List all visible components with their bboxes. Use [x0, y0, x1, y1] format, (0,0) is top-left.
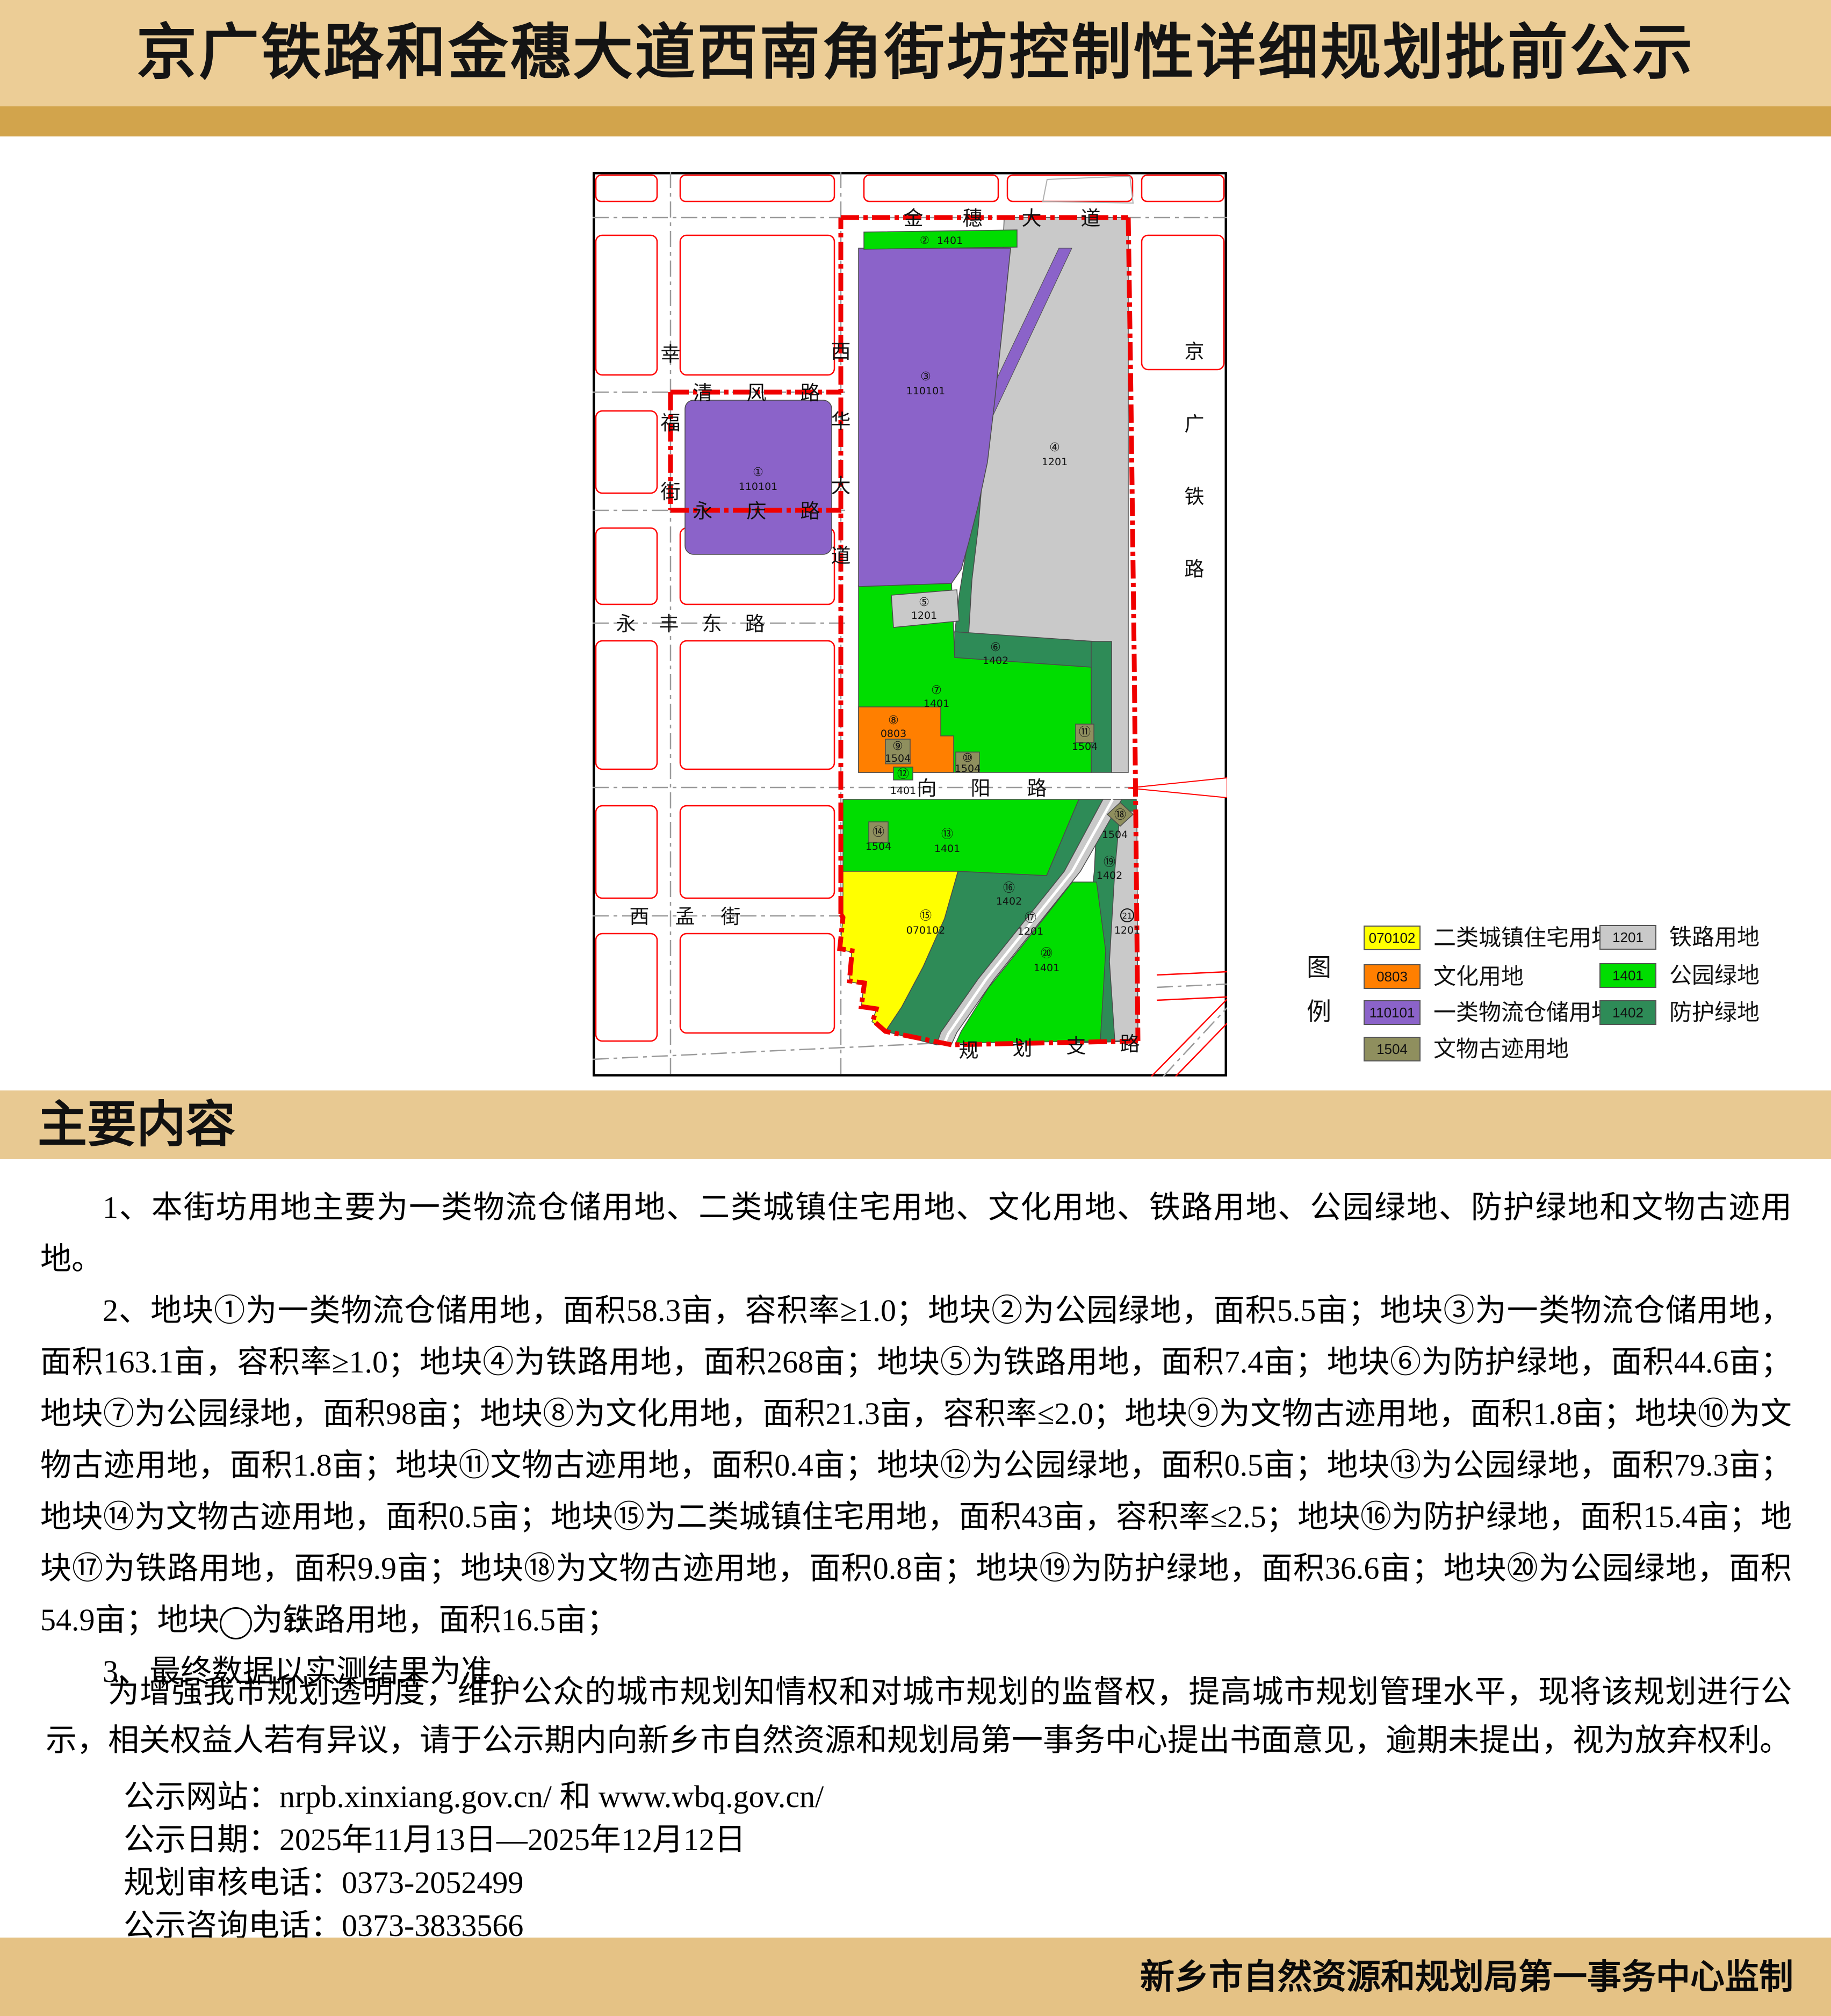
parcel-21-code: 1201: [1114, 924, 1140, 936]
map-legend: 图 例 070102 二类城镇住宅用地 0803 文化用地 110101 一类物…: [1295, 908, 1827, 1069]
parcel-14-code: 1504: [866, 841, 891, 852]
parcel-21-num: 21: [1122, 911, 1132, 921]
parcel-6-shape-c: [1091, 641, 1112, 772]
road-label-xiangyang-3: 路: [1027, 777, 1047, 799]
road-label-xihua-1: 西: [831, 341, 851, 363]
page-title: 京广铁路和金穗大道西南角街坊控制性详细规划批前公示: [0, 0, 1831, 106]
parcel-7-code: 1401: [924, 698, 949, 710]
road-label-jingguang-3: 铁: [1185, 486, 1205, 508]
parcel-17-code: 1201: [1018, 926, 1043, 937]
road-label-yongfengdong-2: 丰: [659, 613, 679, 635]
parcel-16-num: ⑯: [1003, 881, 1015, 895]
road-label-xingfu-1: 幸: [661, 343, 681, 365]
paragraph-1: 1、本街坊用地主要为一类物流仓储用地、二类城镇住宅用地、文化用地、铁路用地、公园…: [40, 1182, 1792, 1285]
title-band: 京广铁路和金穗大道西南角街坊控制性详细规划批前公示: [0, 0, 1831, 106]
parcel-8-num: ⑧: [888, 714, 899, 727]
parcel-20-num: ⑳: [1041, 947, 1053, 960]
parcel-15-code: 070102: [906, 924, 946, 936]
parcel-6-num: ⑥: [990, 641, 1001, 654]
road-label-guihua-4: 路: [1120, 1033, 1140, 1055]
road-label-xihua-2: 华: [831, 410, 851, 432]
parcel-12-code: 1401: [890, 785, 916, 797]
road-label-jingguang-2: 广: [1185, 413, 1205, 435]
parcel-9-num: ⑨: [892, 740, 903, 753]
paragraph-2-part-a: 2、地块①为一类物流仓储用地，面积58.3亩，容积率≥1.0；地块②为公园绿地，…: [40, 1293, 1792, 1637]
parcel-10-code: 1504: [955, 763, 981, 775]
paragraph-2: 2、地块①为一类物流仓储用地，面积58.3亩，容积率≥1.0；地块②为公园绿地，…: [40, 1285, 1792, 1646]
legend-label-1504: 文物古迹用地: [1433, 1037, 1569, 1061]
footer-text: 新乡市自然资源和规划局第一事务中心监制: [1140, 1938, 1793, 2016]
section-band: 主要内容: [0, 1090, 1831, 1159]
parcel-16-code: 1402: [996, 895, 1022, 907]
paragraph-2-part-b: 为铁路用地，面积16.5亩；: [252, 1602, 618, 1637]
legend-title-char-1: 图: [1306, 945, 1332, 989]
parcel-9-code: 1504: [885, 753, 911, 764]
legend-swatch-1401: 1401: [1599, 963, 1656, 988]
parcel-4-code: 1201: [1042, 456, 1068, 468]
road-label-guihua-3: 支: [1066, 1035, 1086, 1057]
notice-date-line: 公示日期：2025年11月13日—2025年12月12日: [124, 1818, 1792, 1861]
road-label-yongfengdong-4: 路: [745, 613, 765, 635]
parcel-7-num: ⑦: [931, 684, 942, 697]
legend-swatch-1402: 1402: [1599, 1000, 1656, 1025]
parcel-19-code: 1402: [1097, 870, 1122, 881]
map-svg: 金 穗 大 道 清 风 路 永 庆 路 永 丰 东 路 向 阳 路 西 孟 街 …: [593, 172, 1227, 1076]
road-label-xingfu-3: 街: [661, 481, 681, 503]
road-label-yongqing-2: 庆: [747, 500, 767, 522]
road-label-guihua-2: 划: [1013, 1037, 1033, 1059]
parcel-19-num: ⑲: [1104, 856, 1115, 869]
legend-label-1201: 铁路用地: [1669, 925, 1760, 950]
parcel-15-num: ⑮: [920, 909, 932, 923]
legend-label-1402: 防护绿地: [1669, 1000, 1760, 1025]
parcel-1-num: ①: [753, 466, 763, 479]
notice-website-line: 公示网站：nrpb.xinxiang.gov.cn/ 和 www.wbq.gov…: [124, 1775, 1792, 1818]
road-label-xiangyang-2: 阳: [971, 777, 991, 799]
road-label-yongfengdong-1: 永: [616, 613, 636, 635]
road-label-jinsui-2: 穗: [963, 207, 983, 229]
legend-title-char-2: 例: [1306, 989, 1332, 1034]
road-label-jinsui-1: 金: [904, 207, 924, 229]
gold-stripe: [0, 106, 1831, 136]
parcel-5-code: 1201: [911, 610, 937, 622]
legend-swatch-0803: 0803: [1364, 964, 1421, 989]
legend-swatch-1504: 1504: [1364, 1037, 1421, 1061]
parcel-5-num: ⑤: [919, 596, 929, 609]
road-label-yongqing-1: 永: [693, 500, 713, 522]
road-label-yongfengdong-3: 东: [702, 613, 722, 635]
parcel-3-code: 110101: [906, 385, 946, 397]
road-label-ximeng-2: 孟: [675, 906, 695, 928]
road-label-xihua-4: 道: [831, 545, 851, 567]
road-label-xingfu-2: 福: [661, 412, 681, 434]
road-label-guihua-1: 规: [959, 1039, 979, 1061]
road-label-ximeng-1: 西: [630, 906, 650, 928]
parcel-2-code: 1401: [937, 235, 963, 247]
parcel-13-code: 1401: [934, 843, 960, 855]
parcel-12-num: ⑫: [897, 768, 909, 781]
parcel-8-code: 0803: [881, 728, 906, 740]
footer-band: 新乡市自然资源和规划局第一事务中心监制: [0, 1938, 1831, 2016]
parcel-17-num: ⑰: [1025, 912, 1036, 925]
parcel-18-code: 1504: [1102, 829, 1128, 841]
main-content-text: 1、本街坊用地主要为一类物流仓储用地、二类城镇住宅用地、文化用地、铁路用地、公园…: [40, 1182, 1792, 1697]
parcel-13-num: ⑬: [941, 828, 953, 841]
legend-title: 图 例: [1306, 945, 1332, 1034]
legend-swatch-070102: 070102: [1364, 926, 1421, 950]
section-header: 主要内容: [0, 1090, 1831, 1159]
parcel-18-num: ⑱: [1114, 808, 1126, 822]
parcel-6-code: 1402: [983, 655, 1008, 667]
parcel-3-num: ③: [920, 370, 931, 384]
legend-label-070102: 二类城镇住宅用地: [1433, 926, 1614, 950]
notice-review-phone-line: 规划审核电话：0373-2052499: [124, 1861, 1792, 1904]
planning-notice-page: 京广铁路和金穗大道西南角街坊控制性详细规划批前公示: [0, 0, 1831, 2016]
circled-21: 21: [220, 1607, 252, 1639]
road-label-qingfeng-1: 清: [693, 382, 713, 404]
road-label-ximeng-3: 街: [721, 906, 741, 928]
legend-label-110101: 一类物流仓储用地: [1433, 1000, 1614, 1025]
parcel-11-code: 1504: [1072, 741, 1098, 753]
road-label-qingfeng-2: 风: [747, 382, 767, 404]
legend-swatch-1201: 1201: [1599, 925, 1656, 950]
legend-swatch-110101: 110101: [1364, 1000, 1421, 1025]
road-label-xiangyang-1: 向: [917, 777, 937, 799]
parcel-11-num: ⑪: [1079, 726, 1091, 739]
planning-map: 金 穗 大 道 清 风 路 永 庆 路 永 丰 东 路 向 阳 路 西 孟 街 …: [593, 172, 1227, 1076]
road-label-jinsui-3: 大: [1022, 207, 1042, 229]
legend-label-1401: 公园绿地: [1669, 963, 1760, 988]
road-label-jingguang-1: 京: [1185, 341, 1205, 363]
road-label-xihua-3: 大: [831, 475, 851, 497]
parcel-14-num: ⑭: [873, 826, 884, 839]
road-label-yongqing-3: 路: [801, 500, 820, 522]
road-label-jinsui-4: 道: [1081, 207, 1101, 229]
parcel-20-code: 1401: [1034, 962, 1059, 974]
parcel-4-num: ④: [1049, 441, 1060, 454]
road-label-qingfeng-3: 路: [801, 382, 820, 404]
parcel-2-num: ②: [920, 234, 929, 247]
notice-paragraph: 为增强我市规划透明度，维护公众的城市规划知情权和对城市规划的监督权，提高城市规划…: [46, 1668, 1792, 1765]
notice-block: 为增强我市规划透明度，维护公众的城市规划知情权和对城市规划的监督权，提高城市规划…: [46, 1668, 1792, 1947]
notice-lines: 公示网站：nrpb.xinxiang.gov.cn/ 和 www.wbq.gov…: [124, 1775, 1792, 1947]
legend-label-0803: 文化用地: [1433, 964, 1524, 989]
road-label-jingguang-4: 路: [1185, 558, 1205, 580]
parcel-1-code: 110101: [739, 481, 778, 493]
